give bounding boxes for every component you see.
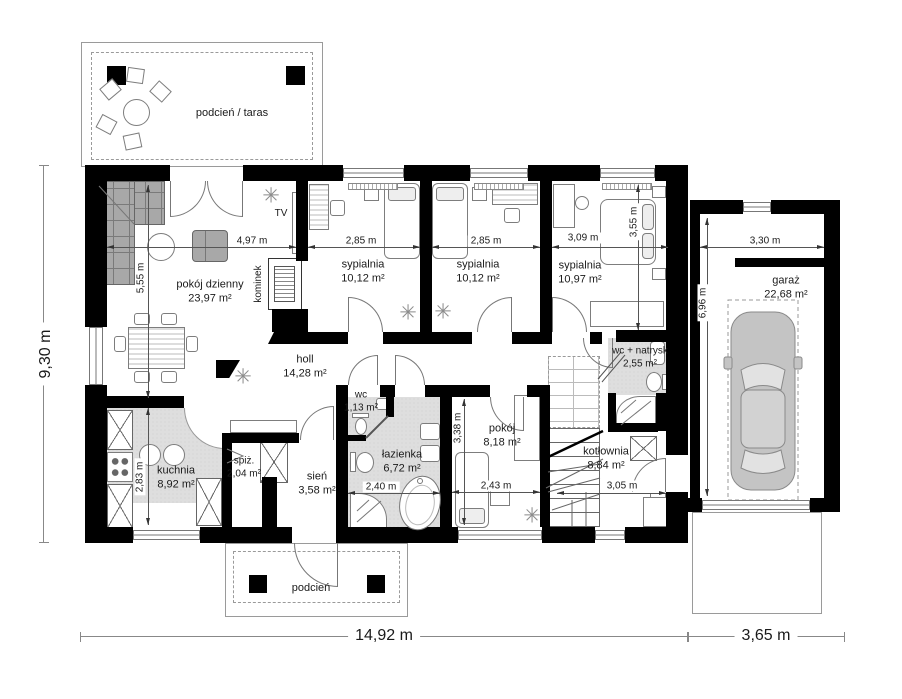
- room-area: 8,84 m²: [583, 459, 629, 473]
- room-label-kitchen: kuchnia 8,92 m²: [157, 464, 195, 492]
- pillow: [436, 187, 464, 201]
- porch-column: [249, 575, 267, 593]
- dim-label: 3,09 m: [565, 233, 602, 244]
- room-name: kotłownia: [583, 445, 629, 459]
- desk-chair: [575, 196, 589, 210]
- room-name: kuchnia: [157, 464, 195, 478]
- wall: [540, 385, 550, 527]
- wall: [85, 385, 107, 543]
- wall: [386, 397, 394, 417]
- room-label-bathroom: łazienka 6,72 m²: [382, 448, 422, 476]
- kitchen-cabinet: [196, 478, 222, 526]
- dim-label: 2,83 m: [135, 459, 146, 496]
- hallway-door: [300, 406, 334, 440]
- plant-icon: ✳: [234, 367, 252, 388]
- room-area: 14,28 m²: [283, 367, 326, 381]
- room-label-vestibule: sień 3,58 m²: [298, 470, 335, 498]
- porch-column: [367, 575, 385, 593]
- room-area: 1,13 m²: [344, 402, 378, 415]
- wall: [348, 435, 366, 441]
- room-label-boiler: kotłownia 8,84 m²: [583, 445, 629, 473]
- wall: [85, 165, 107, 327]
- room-name: sypialnia: [456, 258, 499, 272]
- wall: [420, 181, 432, 332]
- wall: [296, 181, 308, 261]
- dim-label: 3,05 m: [604, 481, 641, 492]
- driveway-outline: [692, 512, 822, 614]
- room-name: wc + natrysk: [610, 346, 670, 359]
- dim-label: 4,97 m: [234, 236, 271, 247]
- room-area: 10,12 m²: [341, 272, 384, 286]
- room-label-bedroom1: sypialnia 10,12 m²: [341, 258, 384, 286]
- room-name: sień: [298, 470, 335, 484]
- radiator: [602, 183, 652, 190]
- room-label-porch: podcień: [292, 582, 331, 596]
- toilet: [356, 452, 374, 473]
- tv-label: TV: [275, 208, 288, 221]
- terrace-table: [123, 99, 150, 126]
- desk: [309, 184, 329, 230]
- sink: [420, 423, 440, 440]
- wall: [336, 397, 348, 543]
- room-area: 23,97 m²: [176, 292, 243, 306]
- wall: [404, 165, 470, 181]
- dim-line-boiler-width: [557, 493, 666, 494]
- dim-line-garage-width: [700, 247, 824, 248]
- room-area: 2,04 m²: [227, 468, 261, 481]
- window: [133, 530, 200, 540]
- dim-label: 2,85 m: [468, 236, 505, 247]
- dim-line-room-height: [464, 399, 465, 525]
- room-name: pokój: [483, 422, 520, 436]
- dim-label: 2,40 m: [363, 482, 400, 493]
- dining-table: [128, 327, 185, 369]
- radiator: [348, 183, 398, 190]
- dim-label-total-width: 14,92 m: [348, 627, 420, 645]
- stove: [107, 452, 133, 482]
- dim-label: 5,55 m: [136, 260, 147, 297]
- desk-chair: [504, 208, 520, 223]
- dim-line-living-width: [107, 247, 296, 248]
- garage-door: [702, 500, 810, 510]
- room-label-living: pokój dzienny 23,97 m²: [176, 278, 243, 306]
- wall: [383, 332, 472, 344]
- wall: [380, 385, 395, 397]
- room-name: podcień: [292, 582, 331, 596]
- room-area: 10,12 m²: [456, 272, 499, 286]
- stairs-upper-dashed: [548, 356, 600, 428]
- fireplace-grille: [274, 266, 295, 302]
- wall: [272, 309, 296, 332]
- nightstand: [652, 268, 666, 280]
- room-name: sypialnia: [341, 258, 384, 272]
- dim-label: 3,55 m: [629, 204, 640, 241]
- room-label-terrace: podcień / taras: [196, 107, 268, 121]
- dim-label: 6,96 m: [698, 285, 709, 322]
- nightstand: [652, 186, 666, 198]
- dim-label: 3,38 m: [453, 410, 464, 447]
- dining-chair: [114, 336, 126, 352]
- window: [458, 530, 542, 540]
- toilet: [355, 418, 367, 435]
- armchair: [192, 230, 228, 262]
- dim-line-room-width: [452, 492, 540, 493]
- window: [89, 327, 103, 385]
- dining-chair: [161, 371, 177, 383]
- room-label-hall: holl 14,28 m²: [283, 353, 326, 381]
- garage-wall: [824, 200, 840, 498]
- kitchen-sink: [163, 444, 185, 466]
- wall: [540, 181, 552, 332]
- plant-icon: ✳: [399, 303, 417, 324]
- kitchen-cabinet: [107, 410, 133, 450]
- dim-line-bed3-width: [552, 247, 668, 248]
- wall-stub: [268, 330, 296, 344]
- room-label-bedroom3: sypialnia 10,97 m²: [558, 259, 601, 287]
- room-area: 2,55 m²: [610, 358, 670, 371]
- room-name: holl: [283, 353, 326, 367]
- window: [600, 168, 655, 178]
- wall: [528, 165, 600, 181]
- fireplace-label: kominek: [253, 265, 266, 302]
- wall: [542, 527, 595, 543]
- wall: [222, 433, 299, 443]
- bathroom-door: [395, 355, 425, 385]
- dim-line-garage-height: [707, 218, 708, 496]
- wall: [512, 332, 552, 344]
- room-label-garage: garaż 22,68 m²: [764, 274, 807, 302]
- wall: [262, 477, 277, 527]
- bedroom3-door: [552, 297, 587, 332]
- dim-label-total-height: 9,30 m: [37, 323, 55, 386]
- kitchen-cabinet: [107, 484, 133, 528]
- room-name: garaż: [764, 274, 807, 288]
- window: [595, 530, 625, 540]
- sink: [420, 445, 440, 462]
- wall: [243, 165, 343, 181]
- room-area: 22,68 m²: [764, 288, 807, 302]
- wall: [440, 385, 452, 543]
- dim-line-living-height: [148, 185, 149, 398]
- floor-plan: ✳ ✳ ✳ ✳ ✳: [0, 0, 902, 699]
- room-area: 6,72 m²: [382, 462, 422, 476]
- room-label-bedroom2: sypialnia 10,12 m²: [456, 258, 499, 286]
- terrace-door-left-leaf: [170, 181, 206, 217]
- plant-icon: ✳: [262, 186, 280, 207]
- room-name: wc: [344, 390, 378, 403]
- dim-line-bed2-width: [432, 247, 540, 248]
- bedroom1-door: [348, 297, 383, 332]
- dim-label: 3,30 m: [747, 236, 784, 247]
- pillow: [642, 204, 654, 230]
- terrace-door-right-leaf: [207, 181, 243, 217]
- desk: [553, 184, 575, 228]
- wc-door: [348, 355, 378, 385]
- plant-icon: ✳: [434, 302, 452, 323]
- room-name: podcień / taras: [196, 107, 268, 121]
- wall: [608, 393, 616, 425]
- dim-label: 2,85 m: [343, 236, 380, 247]
- dining-chair: [186, 336, 198, 352]
- stairs-lower: [548, 428, 600, 527]
- pillow: [642, 233, 654, 259]
- bedroom2-door: [477, 297, 512, 332]
- room-name: spiż.: [227, 456, 261, 469]
- room-label-room: pokój 8,18 m²: [483, 422, 520, 450]
- plant-icon: ✳: [523, 506, 541, 527]
- wall: [85, 527, 133, 543]
- wardrobe: [590, 301, 664, 327]
- window: [470, 168, 528, 178]
- dining-chair: [161, 313, 177, 325]
- dim-label-total-garage-width: 3,65 m: [735, 627, 798, 645]
- toilet: [646, 372, 662, 392]
- room-name: łazienka: [382, 448, 422, 462]
- wall: [296, 332, 348, 344]
- dim-label: 2,43 m: [478, 481, 515, 492]
- hall-cabinet: [230, 420, 297, 433]
- room-area: 10,97 m²: [558, 273, 601, 287]
- terrace-column: [286, 66, 305, 85]
- room-area: 8,92 m²: [157, 478, 195, 492]
- room-label-wc: wc 1,13 m²: [344, 390, 378, 415]
- room-area: 8,18 m²: [483, 436, 520, 450]
- wall: [85, 396, 184, 408]
- radiator: [474, 183, 524, 190]
- room-name: pokój dzienny: [176, 278, 243, 292]
- garage-wall: [690, 214, 700, 498]
- car-icon: [718, 295, 828, 505]
- garage-wall: [810, 498, 840, 512]
- garage-wall: [690, 200, 743, 214]
- wall: [656, 393, 688, 431]
- garage-partition-wall: [735, 258, 824, 267]
- room-name: sypialnia: [558, 259, 601, 273]
- water-tank: [630, 436, 657, 461]
- dim-line-kitchen-height: [148, 408, 149, 525]
- garage-window: [743, 202, 771, 212]
- wall: [452, 385, 490, 397]
- desk-chair: [330, 200, 345, 216]
- wall: [200, 527, 292, 543]
- dim-line-bath-width: [348, 493, 440, 494]
- terrace-chair: [126, 67, 145, 84]
- dim-line-bed1-width: [308, 247, 420, 248]
- garage-wall: [672, 498, 702, 512]
- wall: [296, 309, 308, 334]
- room-label-pantry: spiż. 2,04 m²: [227, 456, 261, 481]
- window: [343, 168, 404, 178]
- room-area: 3,58 m²: [298, 484, 335, 498]
- room-label-wc-shower: wc + natrysk 2,55 m²: [610, 346, 670, 371]
- wall: [616, 330, 668, 342]
